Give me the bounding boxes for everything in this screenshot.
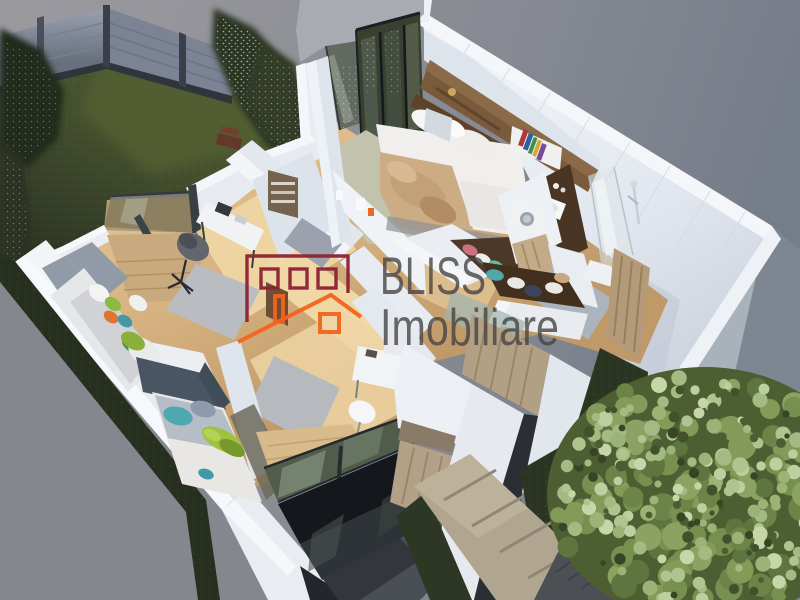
svg-text:BLISS: BLISS (380, 247, 486, 306)
svg-text:Imobiliare: Imobiliare (380, 299, 559, 357)
